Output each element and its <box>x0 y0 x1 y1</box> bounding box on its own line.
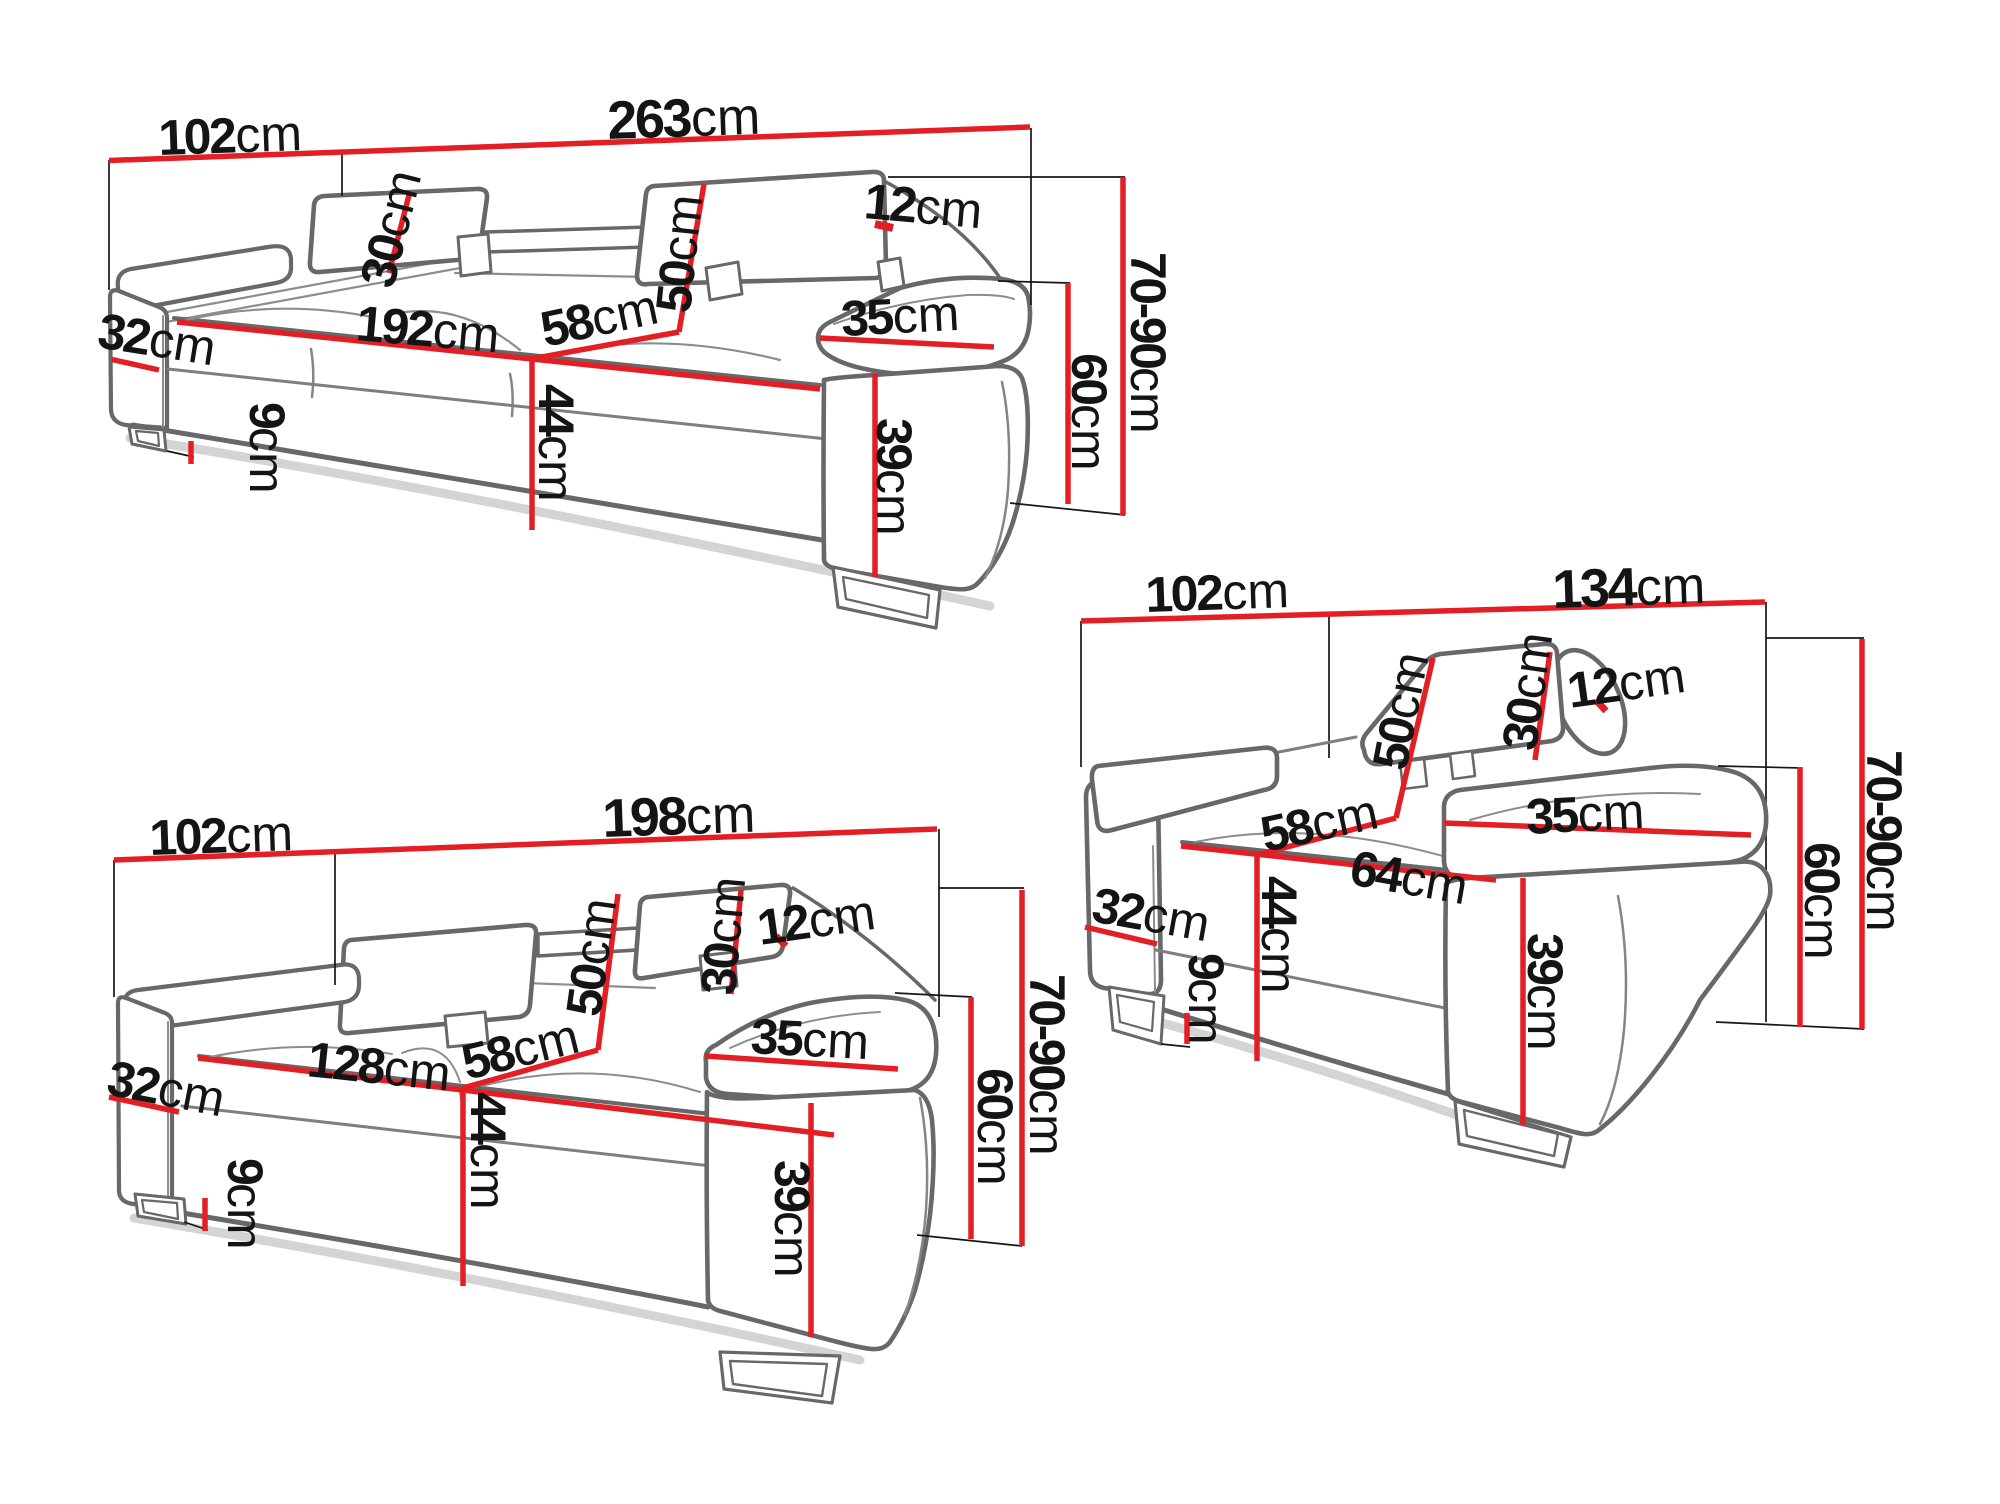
svg-text:cm: cm <box>563 895 628 969</box>
svg-text:cm: cm <box>1139 886 1214 953</box>
svg-text:9: 9 <box>239 402 295 428</box>
svg-text:cm: cm <box>1120 367 1176 434</box>
svg-text:44: 44 <box>528 384 584 437</box>
svg-text:cm: cm <box>695 874 757 945</box>
svg-text:70-90: 70-90 <box>1019 974 1075 1090</box>
svg-text:cm: cm <box>1856 865 1912 932</box>
svg-text:cm: cm <box>1251 927 1307 994</box>
svg-text:32: 32 <box>1088 877 1148 941</box>
svg-text:9: 9 <box>217 1158 273 1184</box>
svg-text:134: 134 <box>1551 557 1638 620</box>
svg-text:cm: cm <box>1635 557 1706 617</box>
svg-text:cm: cm <box>1499 629 1564 703</box>
svg-text:128: 128 <box>305 1031 388 1095</box>
svg-text:44: 44 <box>460 1092 516 1145</box>
svg-text:35: 35 <box>840 288 895 347</box>
svg-text:192: 192 <box>354 295 435 357</box>
svg-text:cm: cm <box>866 469 922 536</box>
svg-text:cm: cm <box>145 311 220 377</box>
svg-text:cm: cm <box>239 427 295 494</box>
svg-text:12: 12 <box>862 173 918 233</box>
svg-text:102: 102 <box>1144 564 1223 623</box>
svg-text:cm: cm <box>1019 1089 1075 1156</box>
svg-text:cm: cm <box>1397 849 1472 916</box>
svg-text:cm: cm <box>217 1183 273 1250</box>
svg-text:cm: cm <box>528 435 584 502</box>
svg-text:cm: cm <box>1178 978 1234 1045</box>
svg-text:cm: cm <box>805 884 879 949</box>
svg-text:39: 39 <box>866 418 922 469</box>
svg-text:cm: cm <box>685 786 756 846</box>
svg-text:cm: cm <box>1061 404 1117 471</box>
svg-text:60: 60 <box>1794 842 1850 893</box>
svg-text:9: 9 <box>1178 953 1234 979</box>
svg-text:60: 60 <box>967 1068 1023 1119</box>
svg-text:35: 35 <box>749 1008 804 1067</box>
svg-text:44: 44 <box>1251 876 1307 929</box>
svg-text:cm: cm <box>764 1211 820 1278</box>
svg-text:35: 35 <box>1525 786 1580 845</box>
svg-text:cm: cm <box>1517 984 1573 1051</box>
svg-text:cm: cm <box>913 178 984 240</box>
svg-text:102: 102 <box>148 807 227 866</box>
svg-text:cm: cm <box>381 1039 453 1102</box>
svg-text:cm: cm <box>460 1143 516 1210</box>
svg-text:198: 198 <box>601 786 687 849</box>
svg-text:cm: cm <box>651 192 714 264</box>
svg-text:cm: cm <box>1221 562 1290 620</box>
svg-text:cm: cm <box>431 302 502 364</box>
svg-text:12: 12 <box>1564 656 1623 719</box>
svg-text:cm: cm <box>1615 647 1689 712</box>
svg-text:39: 39 <box>1517 933 1573 984</box>
svg-text:60: 60 <box>1061 353 1117 404</box>
svg-text:32: 32 <box>94 303 153 366</box>
svg-text:12: 12 <box>754 893 813 956</box>
svg-text:70-90: 70-90 <box>1856 750 1912 866</box>
svg-text:cm: cm <box>801 1011 870 1070</box>
svg-text:cm: cm <box>690 88 761 148</box>
svg-text:cm: cm <box>1794 893 1850 960</box>
svg-text:cm: cm <box>891 285 960 344</box>
svg-text:cm: cm <box>225 805 294 863</box>
svg-text:cm: cm <box>234 105 303 163</box>
svg-text:70-90: 70-90 <box>1120 252 1176 368</box>
svg-text:cm: cm <box>967 1119 1023 1186</box>
svg-text:30: 30 <box>690 941 750 997</box>
svg-text:39: 39 <box>764 1160 820 1211</box>
svg-text:263: 263 <box>606 88 692 151</box>
svg-text:102: 102 <box>157 107 236 166</box>
svg-text:cm: cm <box>1576 783 1645 842</box>
svg-text:30: 30 <box>1491 695 1554 754</box>
